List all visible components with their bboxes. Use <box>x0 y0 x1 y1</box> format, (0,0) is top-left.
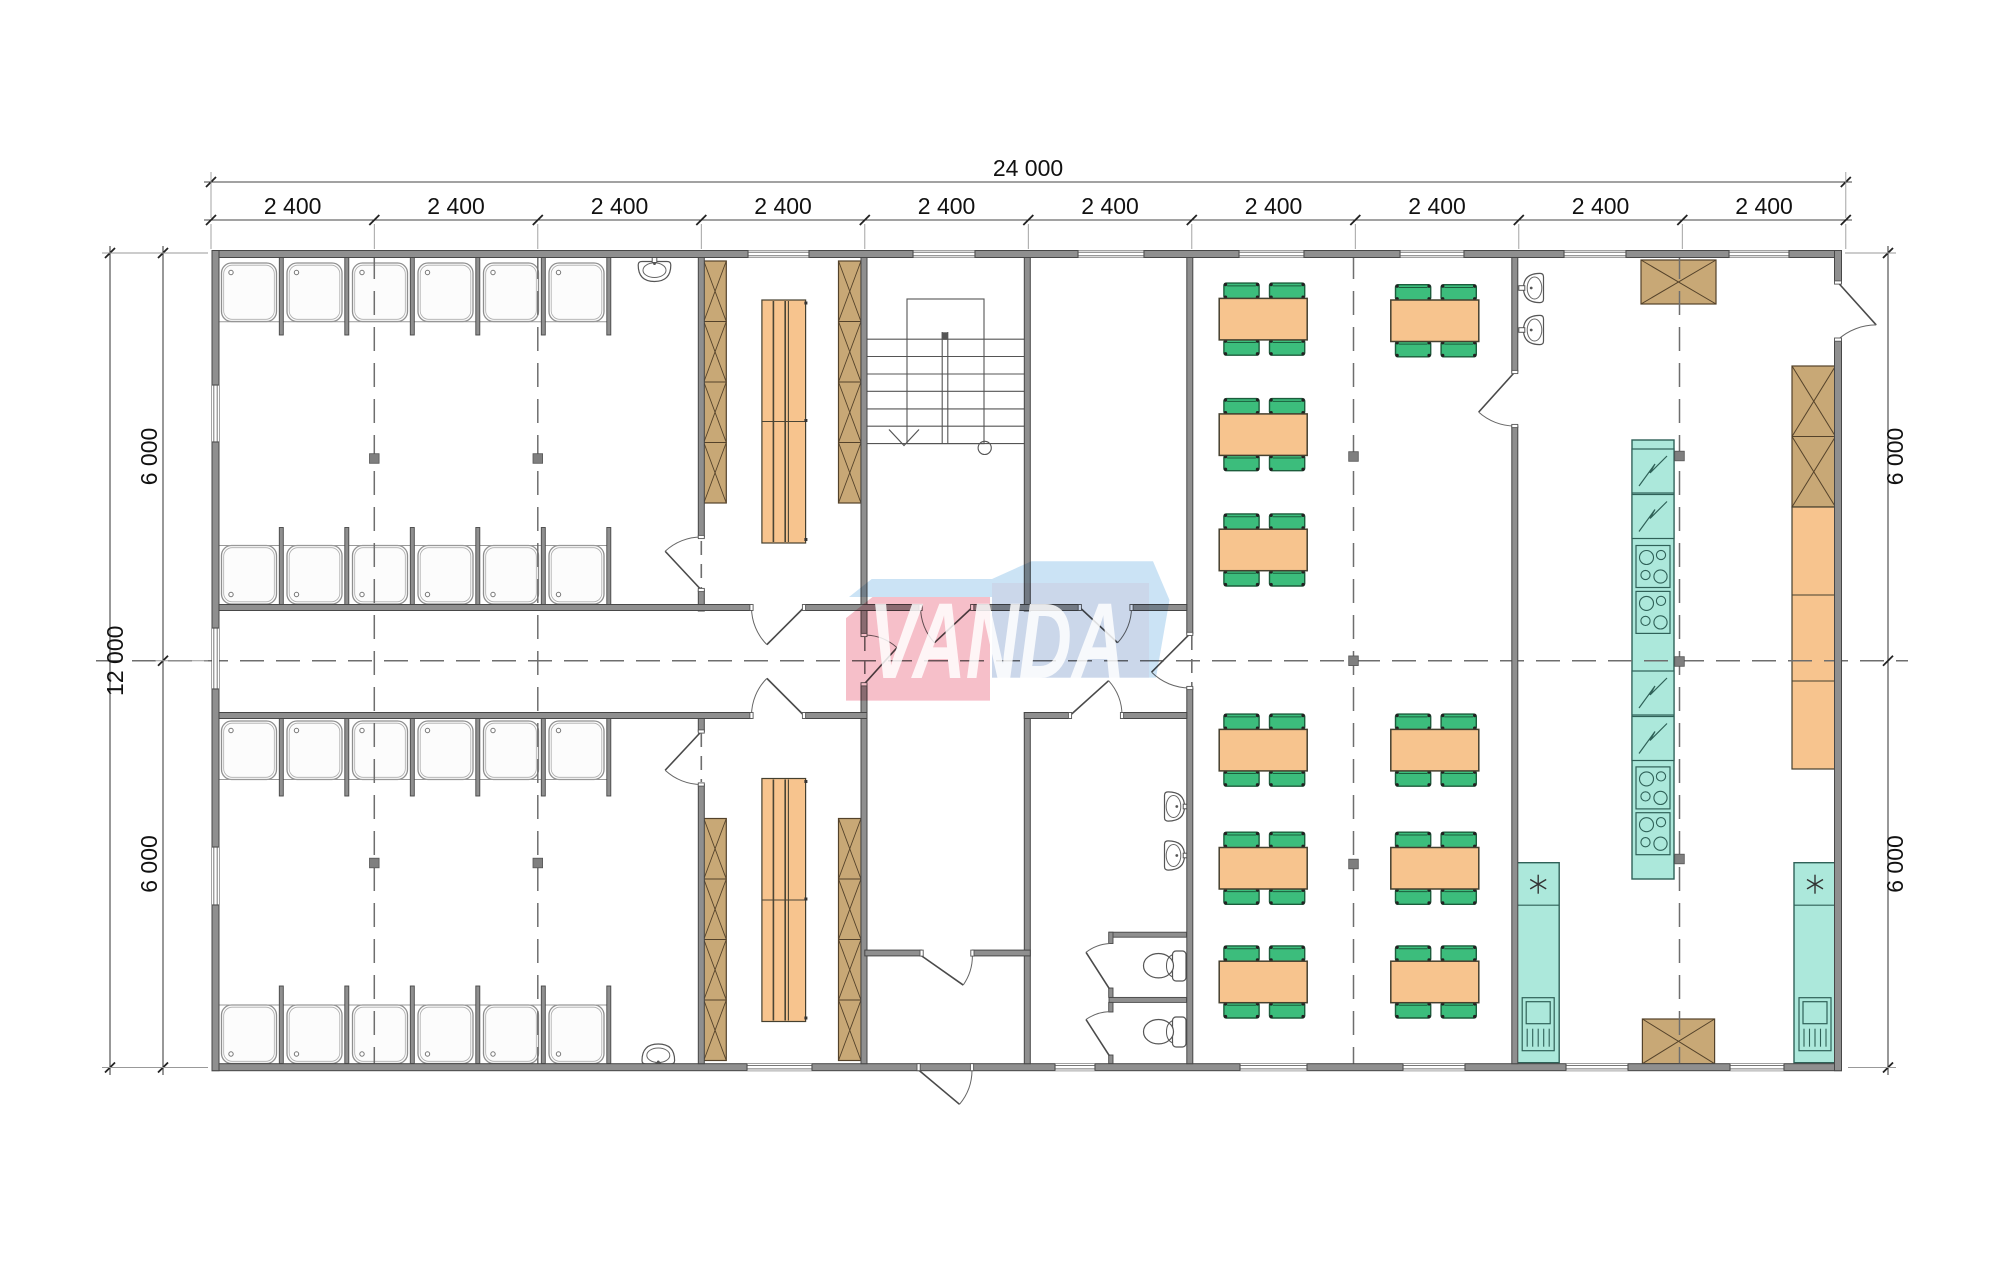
svg-text:2 400: 2 400 <box>264 193 322 219</box>
svg-text:12 000: 12 000 <box>102 626 128 696</box>
svg-text:6 000: 6 000 <box>1882 835 1908 893</box>
svg-text:2 400: 2 400 <box>591 193 649 219</box>
svg-text:2 400: 2 400 <box>1245 193 1303 219</box>
svg-text:6 000: 6 000 <box>1882 428 1908 486</box>
svg-text:2 400: 2 400 <box>918 193 976 219</box>
svg-text:2 400: 2 400 <box>1735 193 1793 219</box>
svg-text:2 400: 2 400 <box>1081 193 1139 219</box>
svg-text:2 400: 2 400 <box>754 193 812 219</box>
svg-text:6 000: 6 000 <box>136 835 162 893</box>
svg-text:VANDA: VANDA <box>869 580 1125 701</box>
svg-text:2 400: 2 400 <box>427 193 485 219</box>
svg-text:24 000: 24 000 <box>993 155 1063 181</box>
svg-text:2 400: 2 400 <box>1408 193 1466 219</box>
svg-text:2 400: 2 400 <box>1572 193 1630 219</box>
svg-text:6 000: 6 000 <box>136 428 162 486</box>
